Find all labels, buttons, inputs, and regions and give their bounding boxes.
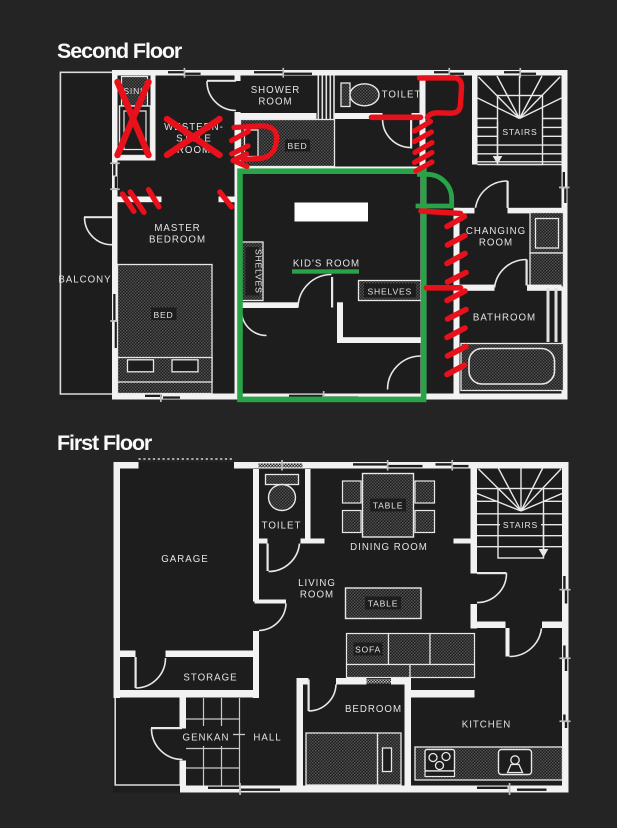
svg-text:KID'S ROOM: KID'S ROOM — [293, 259, 360, 270]
svg-text:MASTER: MASTER — [154, 223, 200, 234]
svg-text:BED: BED — [287, 141, 307, 151]
svg-text:SHELVES: SHELVES — [367, 287, 412, 297]
svg-text:LIVING: LIVING — [298, 578, 336, 589]
svg-text:BED: BED — [153, 310, 173, 320]
svg-text:SHOWER: SHOWER — [251, 85, 301, 96]
svg-text:BEDROOM: BEDROOM — [149, 235, 206, 246]
svg-text:DINING ROOM: DINING ROOM — [350, 542, 428, 553]
svg-text:TOILET: TOILET — [382, 90, 422, 101]
svg-text:Second Floor: Second Floor — [57, 39, 183, 63]
svg-text:SHELVES: SHELVES — [254, 249, 264, 294]
svg-text:GARAGE: GARAGE — [161, 554, 208, 565]
svg-text:HALL: HALL — [253, 733, 281, 744]
svg-text:ROOM: ROOM — [300, 590, 334, 601]
svg-text:GENKAN: GENKAN — [183, 733, 230, 744]
svg-text:TABLE: TABLE — [373, 501, 404, 511]
svg-text:CHANGING: CHANGING — [466, 226, 526, 237]
svg-text:First Floor: First Floor — [57, 431, 153, 455]
svg-text:BATHROOM: BATHROOM — [473, 313, 536, 324]
svg-text:TOILET: TOILET — [262, 521, 302, 532]
svg-text:BEDROOM: BEDROOM — [345, 704, 402, 715]
svg-text:BALCONY: BALCONY — [58, 275, 111, 286]
svg-text:STAIRS: STAIRS — [503, 520, 538, 530]
svg-text:ROOM: ROOM — [479, 238, 513, 249]
svg-text:TABLE: TABLE — [368, 599, 399, 609]
svg-text:ROOM: ROOM — [258, 97, 292, 108]
svg-text:STAIRS: STAIRS — [502, 127, 537, 137]
svg-text:STORAGE: STORAGE — [183, 673, 237, 684]
svg-text:SOFA: SOFA — [355, 645, 381, 655]
svg-text:KITCHEN: KITCHEN — [462, 720, 512, 731]
